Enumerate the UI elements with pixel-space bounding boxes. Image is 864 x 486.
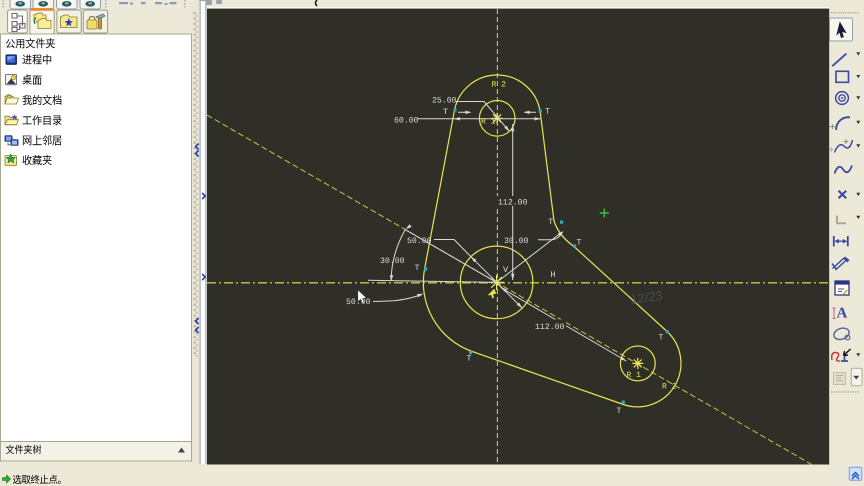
svg-text:H: H [551, 270, 556, 280]
svg-text:T: T [659, 334, 664, 343]
svg-text:R 1: R 1 [627, 371, 642, 380]
svg-text:T: T [545, 108, 550, 117]
svg-text:50.00: 50.00 [407, 237, 432, 246]
svg-text:T: T [577, 239, 582, 248]
svg-text:T: T [467, 354, 472, 363]
svg-text:T: T [548, 218, 553, 227]
svg-text:R 2: R 2 [492, 81, 507, 90]
svg-text:T: T [617, 407, 622, 416]
svg-text:60.00: 60.00 [394, 117, 419, 126]
svg-text:R 1: R 1 [481, 118, 496, 127]
svg-text:112.00: 112.00 [535, 323, 565, 332]
svg-text:30.00: 30.00 [380, 257, 405, 266]
svg-text:T: T [415, 264, 420, 273]
svg-text:T: T [443, 108, 448, 117]
svg-text:25.00: 25.00 [432, 97, 457, 106]
svg-text:30.00: 30.00 [504, 237, 529, 246]
svg-text:112.00: 112.00 [498, 199, 528, 208]
svg-text:R 2: R 2 [662, 383, 677, 392]
svg-text:V: V [503, 265, 509, 275]
svg-text:A: A [837, 306, 848, 322]
